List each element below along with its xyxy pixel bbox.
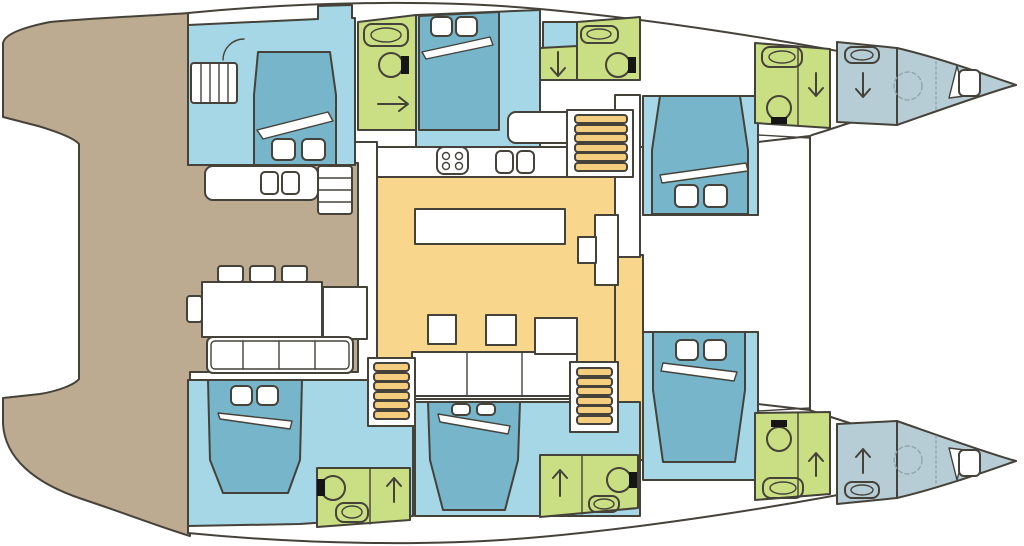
- stair-tread: [374, 392, 409, 400]
- pillow: [272, 139, 295, 160]
- salon-stool: [428, 315, 456, 344]
- cockpit-chair: [282, 266, 307, 282]
- toilet-tank-icon: [317, 479, 325, 496]
- pillow: [704, 185, 727, 207]
- stair-tread: [374, 373, 409, 381]
- bow-berth-pillow: [959, 450, 980, 476]
- toilet-tank-icon: [771, 117, 787, 124]
- toilet-tank-icon: [771, 420, 787, 427]
- stove-icon: [437, 147, 468, 174]
- port-fwd-bed: [652, 96, 748, 214]
- pillow: [477, 404, 495, 415]
- pillow: [302, 139, 325, 160]
- floor-plan-svg: [0, 0, 1024, 546]
- catamaran-floor-plan: [0, 0, 1024, 546]
- toilet-tank-icon: [629, 472, 637, 488]
- pillow: [675, 185, 698, 207]
- cockpit-chair: [250, 266, 275, 282]
- companionway-steps: [191, 63, 237, 103]
- pillow: [257, 386, 278, 405]
- stair-tread: [577, 387, 612, 395]
- toilet-tank-icon: [401, 56, 409, 74]
- toilet-tank-icon: [628, 57, 636, 73]
- hatch-patch: [543, 22, 577, 48]
- pillow: [452, 404, 470, 415]
- port-fwd-head: [755, 43, 830, 128]
- stair-tread: [374, 382, 409, 390]
- salon-stool: [486, 315, 516, 345]
- stair-tread: [577, 368, 612, 376]
- cockpit-dining-table: [202, 282, 322, 337]
- cockpit-end-seat: [323, 287, 367, 339]
- cockpit-sofa: [207, 337, 353, 373]
- stair-tread: [577, 397, 612, 405]
- pillow: [456, 17, 477, 36]
- cockpit-chair: [187, 296, 202, 322]
- salon-island-table: [415, 209, 565, 244]
- stair-tread: [577, 406, 612, 414]
- stair-tread: [575, 153, 627, 161]
- nav-chair: [578, 237, 596, 263]
- pillow: [261, 172, 278, 194]
- salon-sofa: [412, 352, 577, 396]
- stair-tread: [575, 134, 627, 142]
- bow-berth-pillow: [959, 70, 980, 96]
- galley-sink-icon: [517, 151, 534, 173]
- stair-tread: [374, 411, 409, 419]
- stair-tread: [575, 144, 627, 152]
- pillow: [704, 340, 726, 360]
- starboard-aft-bed: [208, 380, 302, 493]
- pillow: [676, 340, 698, 360]
- stair-tread: [575, 115, 627, 123]
- pillow: [431, 17, 452, 36]
- pillow: [231, 386, 252, 405]
- galley-sink-icon: [496, 151, 513, 173]
- stair-tread: [575, 163, 627, 171]
- stair-tread: [374, 363, 409, 371]
- cockpit-chair: [218, 266, 243, 282]
- nav-desk: [595, 215, 618, 285]
- stair-tread: [575, 125, 627, 133]
- salon-sofa-chaise: [535, 318, 577, 354]
- pillow: [282, 172, 299, 194]
- stair-tread: [577, 378, 612, 386]
- stair-tread: [374, 401, 409, 409]
- plan-root: [3, 3, 1016, 543]
- stair-tread: [577, 416, 612, 424]
